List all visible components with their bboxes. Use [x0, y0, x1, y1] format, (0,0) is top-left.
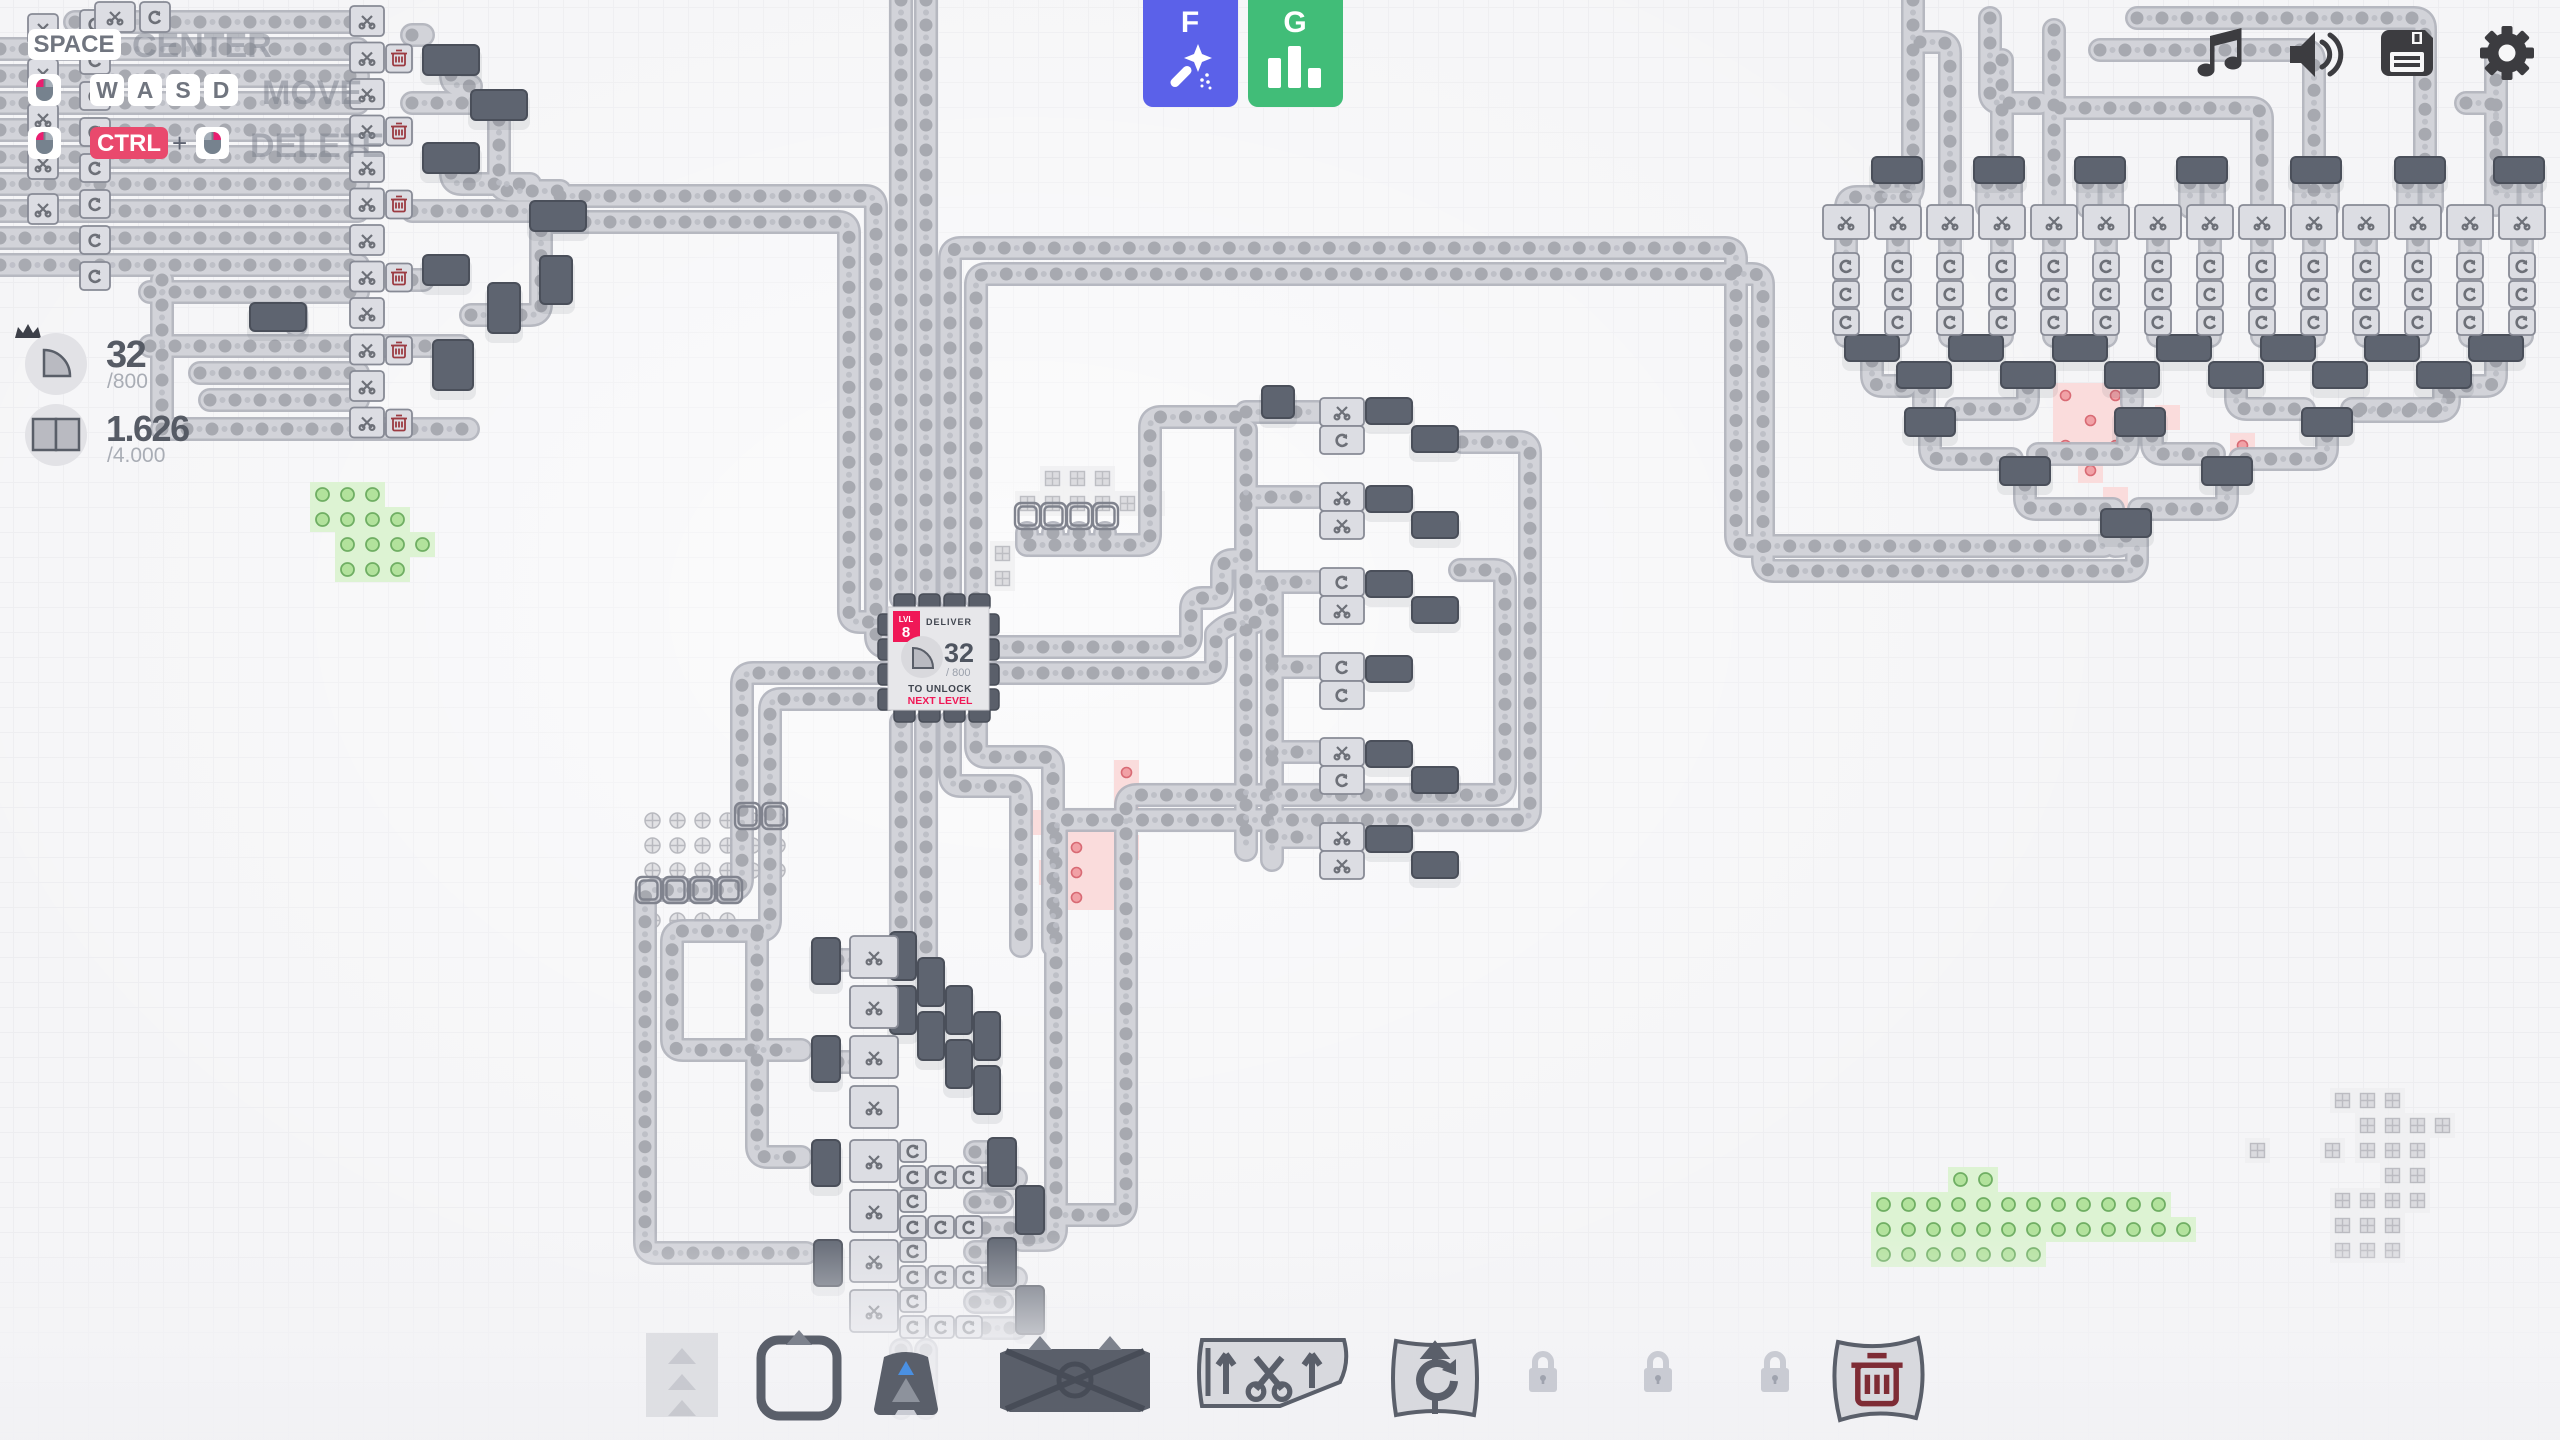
svg-text:DELIVER: DELIVER: [926, 617, 972, 627]
svg-text:SPACE: SPACE: [34, 31, 115, 58]
svg-text:TO UNLOCK: TO UNLOCK: [908, 684, 972, 695]
svg-text:/800: /800: [107, 370, 148, 393]
svg-text:CENTER: CENTER: [132, 27, 272, 65]
svg-text:CTRL: CTRL: [97, 130, 161, 157]
svg-text:F: F: [1181, 6, 1199, 39]
svg-text:NEXT LEVEL: NEXT LEVEL: [908, 695, 973, 707]
svg-text:G: G: [1283, 6, 1306, 39]
svg-text:8: 8: [902, 624, 910, 641]
svg-text:1.626: 1.626: [106, 408, 189, 449]
svg-text:+: +: [172, 128, 187, 158]
svg-text:S: S: [175, 77, 190, 103]
svg-text:LVL: LVL: [899, 615, 914, 624]
svg-text:MOVE: MOVE: [262, 74, 362, 112]
svg-text:W: W: [96, 77, 118, 103]
svg-text:D: D: [213, 77, 230, 103]
svg-text:32: 32: [944, 638, 974, 668]
svg-text:/4.000: /4.000: [107, 444, 165, 467]
svg-text:DELETE: DELETE: [250, 127, 384, 165]
svg-text:/ 800: / 800: [946, 667, 970, 679]
svg-text:A: A: [137, 77, 154, 103]
